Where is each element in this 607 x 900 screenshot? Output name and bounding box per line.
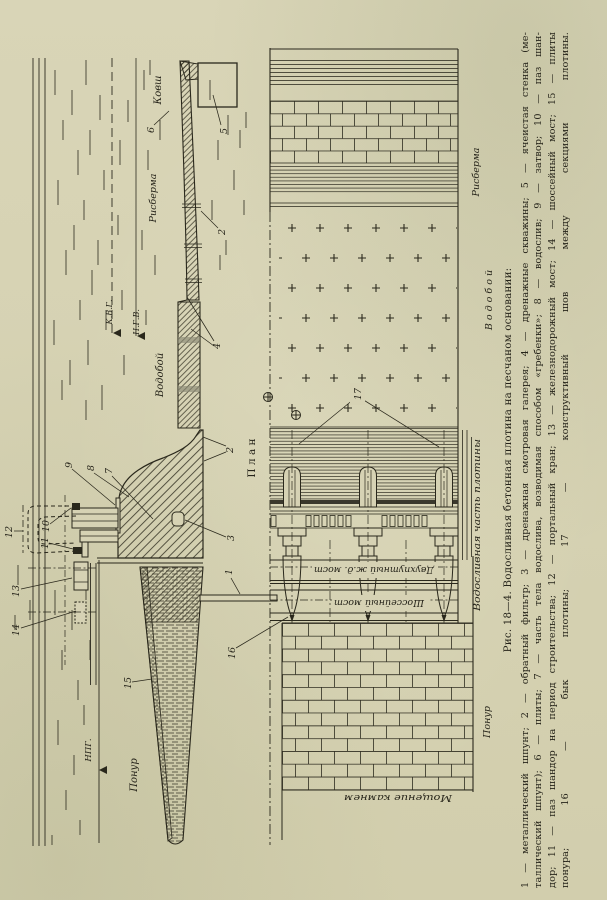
- label-kovsh: Ковш: [153, 75, 164, 105]
- callout-17: 17: [353, 387, 364, 400]
- callout-1: 1: [224, 569, 235, 575]
- figure-legend-line-2: таллический шпунт); 6 — плиты; 7 — часть…: [532, 32, 545, 888]
- figure-legend-line-3: дор; 11 — паз шандор на период строитель…: [546, 32, 559, 888]
- callout-12: 12: [4, 526, 15, 538]
- callout-10: 10: [41, 520, 52, 532]
- label-road-bridge: Шоссейный мост: [334, 597, 425, 607]
- label-ponur-section: Понур: [129, 758, 140, 793]
- callout-5: 5: [219, 128, 230, 134]
- figure-caption-title: Рис. 18—4. Водосливная бетонная плотина …: [501, 32, 516, 888]
- callout-13: 13: [11, 585, 22, 597]
- dam-body: [118, 430, 203, 558]
- callout-16: 16: [227, 647, 238, 659]
- figure-legend-line-4: понура; 16 — бык плотины; 17 — конструкт…: [559, 32, 572, 888]
- label-vodoboi-section: Водобой: [155, 353, 166, 398]
- bridge-beams: [271, 516, 427, 527]
- label-plan-title: П л а н: [246, 438, 258, 477]
- label-npg: НПГ.: [84, 738, 94, 762]
- slot-11: [73, 547, 82, 554]
- book-page: Ковш Рисберма Водобой К.В.Г. Н.Г.В. НПГ.…: [0, 0, 607, 900]
- callout-2a: 2: [217, 229, 228, 236]
- callout-2b: 2: [225, 447, 236, 454]
- label-kvg: К.В.Г.: [105, 300, 114, 326]
- label-vodoboi-plan: В о д о б о й: [484, 270, 495, 331]
- callout-8: 8: [86, 465, 97, 471]
- rail-bridge-section: [74, 562, 88, 590]
- sheet-pile: [200, 595, 277, 601]
- callout-9: 9: [64, 462, 75, 468]
- label-paving: Мощение камнем: [344, 792, 453, 803]
- figure-legend-line-1: 1 — металлический шпунт; 2 — обратный фи…: [519, 32, 532, 888]
- callout-7: 7: [104, 467, 115, 474]
- callout-4: 4: [212, 343, 223, 350]
- crest-bridges: [72, 508, 118, 623]
- label-spillway-part: Водосливная часть плотины: [473, 439, 483, 612]
- portal-crane: [28, 506, 77, 553]
- kvg-level-mark: [113, 329, 121, 337]
- label-risberma-section: Рисберма: [148, 173, 159, 223]
- road-bridge-section: [75, 602, 86, 623]
- label-ngv: Н.Г.В.: [132, 309, 141, 336]
- figure-caption: Рис. 18—4. Водосливная бетонная плотина …: [501, 32, 573, 888]
- dam-plan-view: [264, 48, 474, 845]
- label-risberma-plan: Рисберма: [471, 147, 482, 197]
- water-lines: [15, 58, 246, 846]
- callout-11: 11: [40, 537, 51, 549]
- callout-3: 3: [226, 535, 237, 541]
- label-ponur-plan: Понур: [482, 706, 493, 739]
- cell-wall-box: [198, 63, 237, 107]
- npg-level-mark: [99, 766, 107, 774]
- slot-10: [72, 503, 80, 510]
- callout-14: 14: [11, 624, 22, 636]
- basin-slab: [178, 302, 200, 428]
- callout-15: 15: [123, 677, 134, 689]
- callout-6: 6: [146, 127, 157, 133]
- label-rail-bridge: Двухпутный ж.д. мост: [314, 564, 435, 574]
- revetment-band: [180, 61, 199, 300]
- gallery: [172, 512, 184, 526]
